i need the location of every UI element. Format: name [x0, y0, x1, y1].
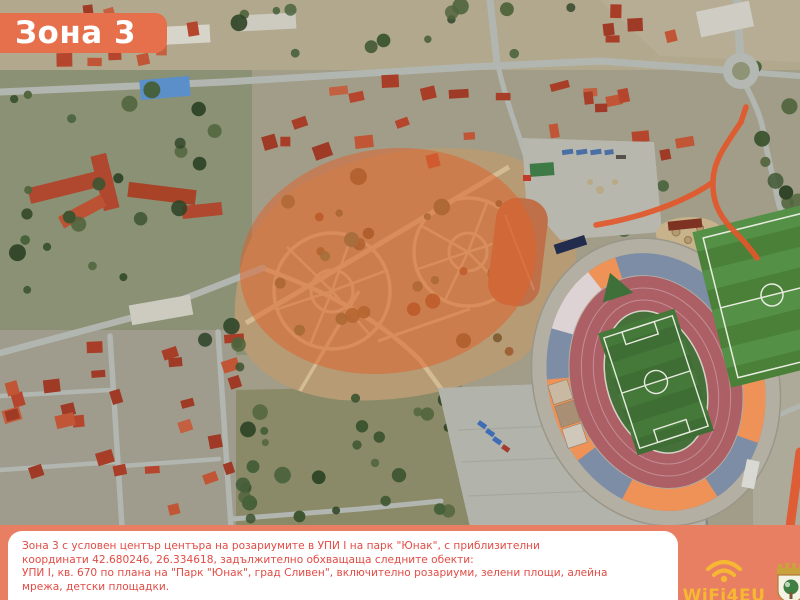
caption-line: Зона 3 с условен център центъра на розар…	[22, 540, 664, 554]
caption-line: УПИ I, кв. 670 по плана на "Парк "Юнак",…	[22, 567, 664, 581]
zone-banner: Зона 3	[0, 13, 167, 53]
wifi4eu-label: WiFi4EU	[672, 586, 776, 600]
caption-panel: Зона 3 с условен център центъра на розар…	[8, 531, 678, 600]
aerial-map	[0, 0, 800, 527]
caption-line: мрежа, детски площадки.	[22, 581, 664, 595]
caption-line: координати 42.680246, 26.334618, задължи…	[22, 554, 664, 568]
roundabout	[723, 53, 759, 89]
wifi4eu-logo: WiFi4EU	[672, 552, 776, 600]
slide: Зона 3 Зона 3 с условен център центъра н…	[0, 0, 800, 600]
zone-banner-label: Зона 3	[15, 15, 136, 51]
wifi-icon	[701, 552, 747, 582]
footer-strip: Зона 3 с условен център центъра на розар…	[0, 525, 800, 600]
sliven-coat-of-arms	[772, 562, 800, 600]
